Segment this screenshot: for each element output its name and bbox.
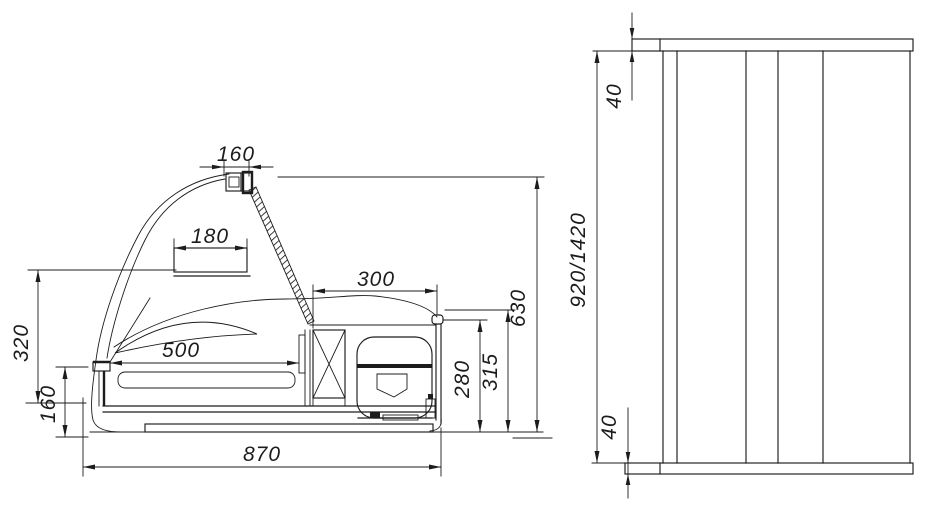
top-cap bbox=[632, 39, 913, 51]
front-glass-curve bbox=[92, 174, 229, 432]
dim-compartment-height-label: 315 bbox=[479, 353, 502, 391]
dim-lamp-width: 160 bbox=[200, 143, 273, 176]
dim-front-panel-height-label: 160 bbox=[37, 385, 60, 423]
panel-seams bbox=[663, 51, 910, 463]
cabinet-body bbox=[93, 330, 436, 432]
dim-glass-height-label: 320 bbox=[10, 324, 33, 362]
lamp-fixture bbox=[226, 172, 252, 193]
bottom-cap bbox=[625, 463, 913, 474]
price-shelf bbox=[174, 248, 250, 276]
condenser-coil bbox=[313, 330, 345, 406]
dim-compartment-width-label: 300 bbox=[357, 268, 395, 291]
dim-top-cap: 40 bbox=[593, 13, 634, 109]
dim-shelf-width-label: 180 bbox=[191, 225, 229, 248]
compressor bbox=[357, 337, 435, 420]
technical-drawing: 160 180 500 300 320 160 bbox=[0, 0, 927, 514]
rear-view: 40 920/1420 40 bbox=[567, 13, 913, 498]
dim-tray-length-label: 500 bbox=[162, 339, 200, 362]
dim-overall-length: 870 bbox=[83, 398, 441, 476]
dim-overall-height-label: 630 bbox=[507, 289, 530, 327]
dim-shelf-width: 180 bbox=[174, 225, 247, 253]
dim-compartment-inner-height-label: 280 bbox=[451, 360, 474, 399]
side-view: 160 180 500 300 320 160 bbox=[10, 143, 552, 476]
dim-panel-height: 920/1420 bbox=[567, 51, 627, 463]
dim-panel-height-label: 920/1420 bbox=[567, 212, 590, 308]
dim-bottom-cap-label: 40 bbox=[598, 414, 621, 439]
drawing-canvas: 160 180 500 300 320 160 bbox=[0, 0, 927, 514]
dim-front-panel-height: 160 bbox=[37, 367, 88, 437]
dim-overall-length-label: 870 bbox=[243, 443, 281, 466]
dim-overall-height: 630 bbox=[278, 177, 552, 438]
dim-compartment-width: 300 bbox=[313, 268, 437, 328]
dim-top-cap-label: 40 bbox=[603, 83, 626, 108]
rear-glass-panel bbox=[249, 187, 314, 324]
dim-bottom-cap: 40 bbox=[598, 408, 630, 498]
machine-compartment bbox=[310, 315, 443, 431]
dim-lamp-width-label: 160 bbox=[217, 143, 255, 166]
dim-tray-length: 500 bbox=[110, 339, 299, 363]
